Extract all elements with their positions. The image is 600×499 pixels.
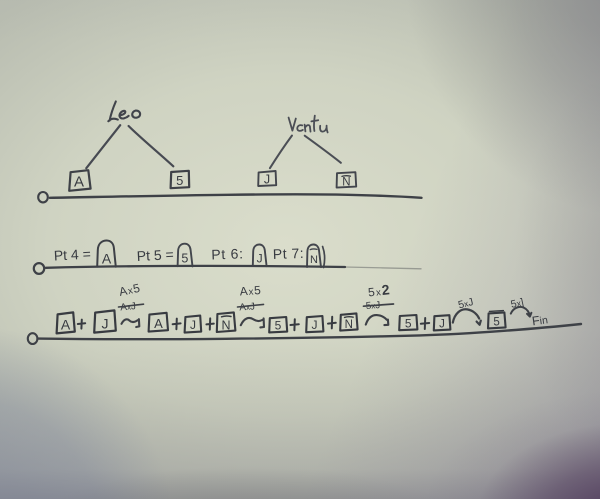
svg-text:N: N [310,254,318,266]
svg-text:Pt 6:: Pt 6: [211,245,244,262]
svg-text:AxJ: AxJ [239,301,255,313]
svg-text:N: N [221,319,230,333]
svg-text:Ax5: Ax5 [118,281,142,299]
svg-text:Pt 5 =: Pt 5 = [136,246,174,264]
svg-text:5: 5 [275,319,282,333]
svg-text:A: A [154,316,163,331]
svg-text:5x]: 5x] [510,296,525,310]
svg-text:5: 5 [181,252,188,266]
svg-text:J: J [439,319,445,331]
svg-text:5: 5 [176,173,183,188]
svg-text:N: N [342,177,350,189]
svg-text:J: J [190,318,196,332]
svg-text:J: J [257,252,263,266]
svg-text:Pt 7:: Pt 7: [273,245,305,262]
svg-text:A: A [102,251,112,267]
svg-text:N: N [345,319,353,331]
svg-text:Ax5: Ax5 [239,283,262,298]
svg-text:A: A [74,174,84,191]
svg-text:Fin: Fin [531,312,549,328]
svg-text:J: J [102,316,109,332]
svg-text:Pt 4 =: Pt 4 = [53,246,91,264]
svg-text:J: J [312,318,318,332]
svg-text:5: 5 [493,317,499,329]
svg-text:5x2: 5x2 [367,281,391,299]
svg-text:J: J [264,173,270,187]
svg-text:A: A [61,317,71,333]
svg-text:5: 5 [405,317,412,331]
